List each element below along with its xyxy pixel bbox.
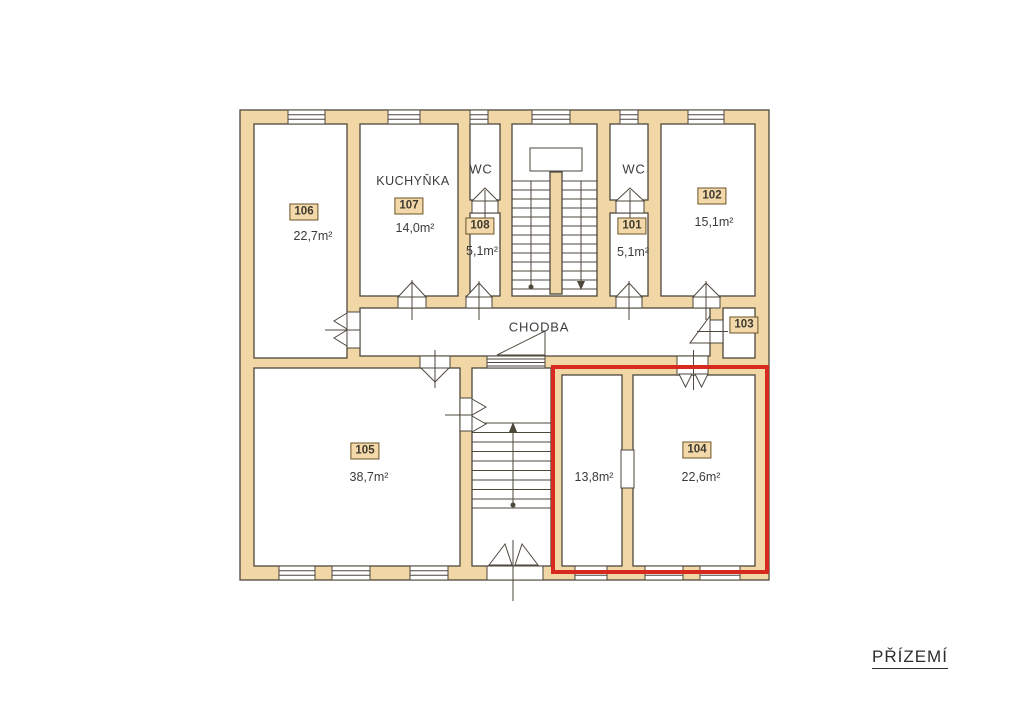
kitchen-label: KUCHYŇKA bbox=[376, 174, 449, 188]
staircase-divider-wall bbox=[550, 172, 562, 294]
room-area-105: 38,7m² bbox=[350, 470, 389, 484]
room-number-102: 102 bbox=[697, 188, 726, 205]
wc-left-label: WC bbox=[469, 162, 492, 177]
room-number-103: 103 bbox=[729, 317, 758, 334]
room-area-small: 13,8m² bbox=[575, 470, 614, 484]
room-area-104: 22,6m² bbox=[682, 470, 721, 484]
floor-title: PŘÍZEMÍ bbox=[872, 647, 948, 669]
room-number-106: 106 bbox=[289, 204, 318, 221]
room-number-107: 107 bbox=[394, 198, 423, 215]
room-area-102: 15,1m² bbox=[695, 215, 734, 229]
door-small-room-to-104 bbox=[621, 450, 634, 488]
room-number-108: 108 bbox=[465, 218, 494, 235]
stair-direction-start-dot bbox=[511, 503, 516, 508]
stair-direction-start-dot bbox=[529, 285, 534, 290]
room-area-101: 5,1m² bbox=[617, 245, 649, 259]
room-number-101: 101 bbox=[617, 218, 646, 235]
room-102-floor bbox=[661, 124, 755, 296]
stairwell-lower-floor bbox=[472, 368, 551, 566]
floor-plan: KUCHYŇKA WC WC CHODBA 106 22,7m² 107 14,… bbox=[0, 0, 1024, 718]
wc-right-label: WC bbox=[622, 162, 645, 177]
room-area-108: 5,1m² bbox=[466, 244, 498, 258]
room-number-104: 104 bbox=[682, 442, 711, 459]
corridor-label: CHODBA bbox=[509, 320, 569, 335]
room-105-floor bbox=[254, 368, 460, 566]
room-number-105: 105 bbox=[350, 443, 379, 460]
room-area-106: 22,7m² bbox=[294, 229, 333, 243]
room-area-107: 14,0m² bbox=[396, 221, 435, 235]
floor-plan-drawing bbox=[0, 0, 1024, 718]
